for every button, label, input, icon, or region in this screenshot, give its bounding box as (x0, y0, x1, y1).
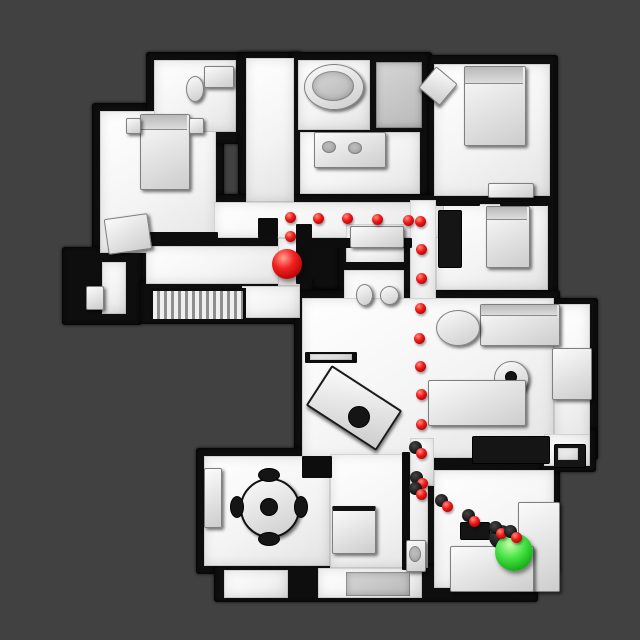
waypoint-dot (511, 532, 522, 543)
waypoint-dot (285, 231, 296, 242)
waypoint-dot (469, 516, 480, 527)
waypoint-dot (415, 216, 426, 227)
navigation-path-layer (0, 0, 640, 640)
waypoint-dot (442, 501, 453, 512)
waypoint-dot (342, 213, 353, 224)
waypoint-dot (415, 361, 426, 372)
waypoint-dot (416, 448, 427, 459)
waypoint-dot (416, 389, 427, 400)
waypoint-dot (416, 419, 427, 430)
waypoint-dot (416, 244, 427, 255)
topdown-map-view (0, 0, 640, 640)
waypoint-dot (416, 489, 427, 500)
agent-start-marker (272, 249, 302, 279)
waypoint-dot (313, 213, 324, 224)
waypoint-dot (416, 273, 427, 284)
waypoint-dot (285, 212, 296, 223)
waypoint-dot (403, 215, 414, 226)
waypoint-dot (415, 303, 426, 314)
waypoint-dot (372, 214, 383, 225)
waypoint-dot (414, 333, 425, 344)
